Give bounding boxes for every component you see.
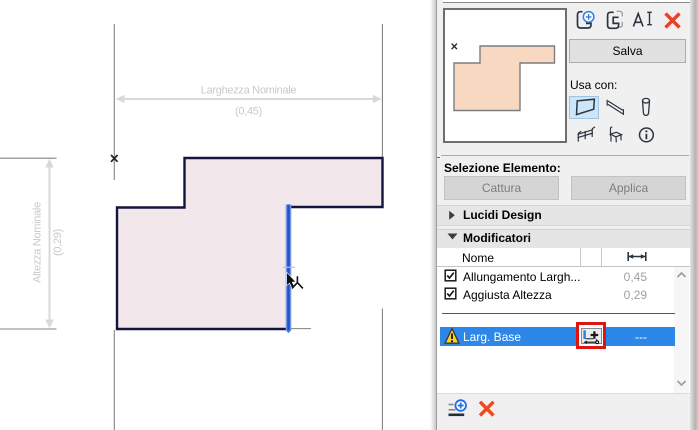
svg-text:(0,29): (0,29) xyxy=(52,229,64,256)
svg-text:(0,45): (0,45) xyxy=(235,106,262,118)
svg-text:Larghezza Nominale: Larghezza Nominale xyxy=(201,85,297,97)
svg-text:Altezza Nominale: Altezza Nominale xyxy=(32,202,44,283)
